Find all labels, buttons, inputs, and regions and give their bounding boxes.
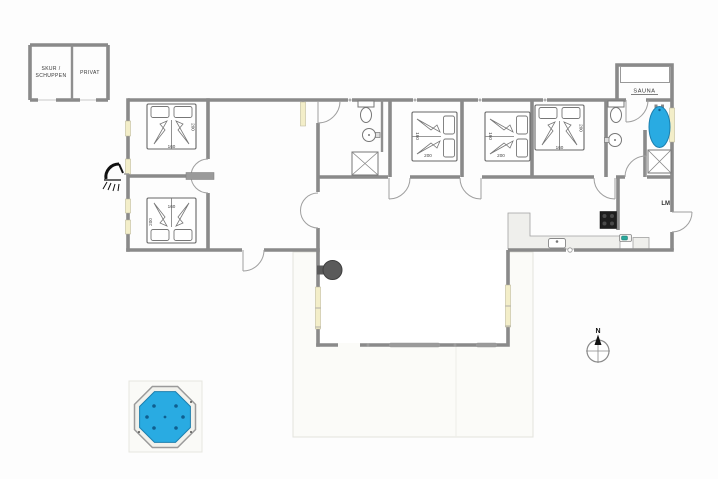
floor-plan-page: SKUR / SCHUPPEN PRIVAT [0,0,718,479]
bedroom-3: 160 200 [412,112,457,161]
bedroom-2: 160 200 [147,198,196,243]
side-entrance-door-arc [672,212,692,232]
sauna-room: SAUNA [621,67,670,95]
kitchen-sink-icon [549,239,566,249]
compass: N [586,328,610,363]
bathroom1-door-arc [318,101,340,123]
living-room-floor [320,250,506,343]
bedroom5-door-arc [594,178,615,199]
shed-privat-label: PRIVAT [80,70,100,76]
sink-tap-icon [376,133,381,138]
bed-length-label: 200 [424,153,432,158]
bedroom-4: 160 200 [485,112,530,161]
bed-width-label: 160 [556,145,564,150]
sauna-shower-icon [648,150,671,173]
bed-length-label: 200 [579,124,584,132]
shed-room-label: SCHUPPEN [36,73,67,79]
bed-width-label: 160 [168,144,176,149]
spa-bath [649,105,670,148]
kitchen-counter [508,213,649,250]
sliding-door-panel [186,173,214,180]
toilet-icon [608,101,624,123]
sauna-bench [621,67,670,83]
hot-tub [135,387,196,448]
bedroom3-door-arc [389,178,410,199]
appliance-label: LM [661,201,670,207]
sauna-label: SAUNA [633,89,655,95]
bedroom4-door-arc [460,178,481,199]
north-label: N [595,328,600,335]
bed-width-label: 160 [488,132,493,140]
entrance-door-arc [243,250,264,271]
bed-width-label: 160 [415,132,420,140]
bathtub [649,107,670,148]
sink-tap-icon [605,138,610,143]
floor-plan: SKUR / SCHUPPEN PRIVAT [0,0,718,479]
small-sink-icon [620,235,632,242]
bed-length-label: 200 [191,123,196,131]
bed-length-label: 200 [148,218,153,226]
outdoor-shower-icon [103,164,129,191]
shed: SKUR / SCHUPPEN PRIVAT [30,45,108,100]
bed-width-label: 160 [168,204,176,209]
bed-length-label: 200 [497,153,505,158]
bedroom-1: 160 200 [147,104,196,149]
bathroom-1 [352,101,380,175]
double-bed [147,104,196,149]
shower-icon [352,152,378,175]
bedroom-5: 160 200 [535,105,584,150]
toilet-icon [358,101,374,123]
double-bed [535,105,584,150]
sauna-door-arc [626,100,648,122]
stove-icon [600,212,617,229]
bathroom2-door-arc [625,156,646,177]
hall-double-door-arc [301,193,319,228]
shed-room-label: SKUR / [41,66,60,72]
